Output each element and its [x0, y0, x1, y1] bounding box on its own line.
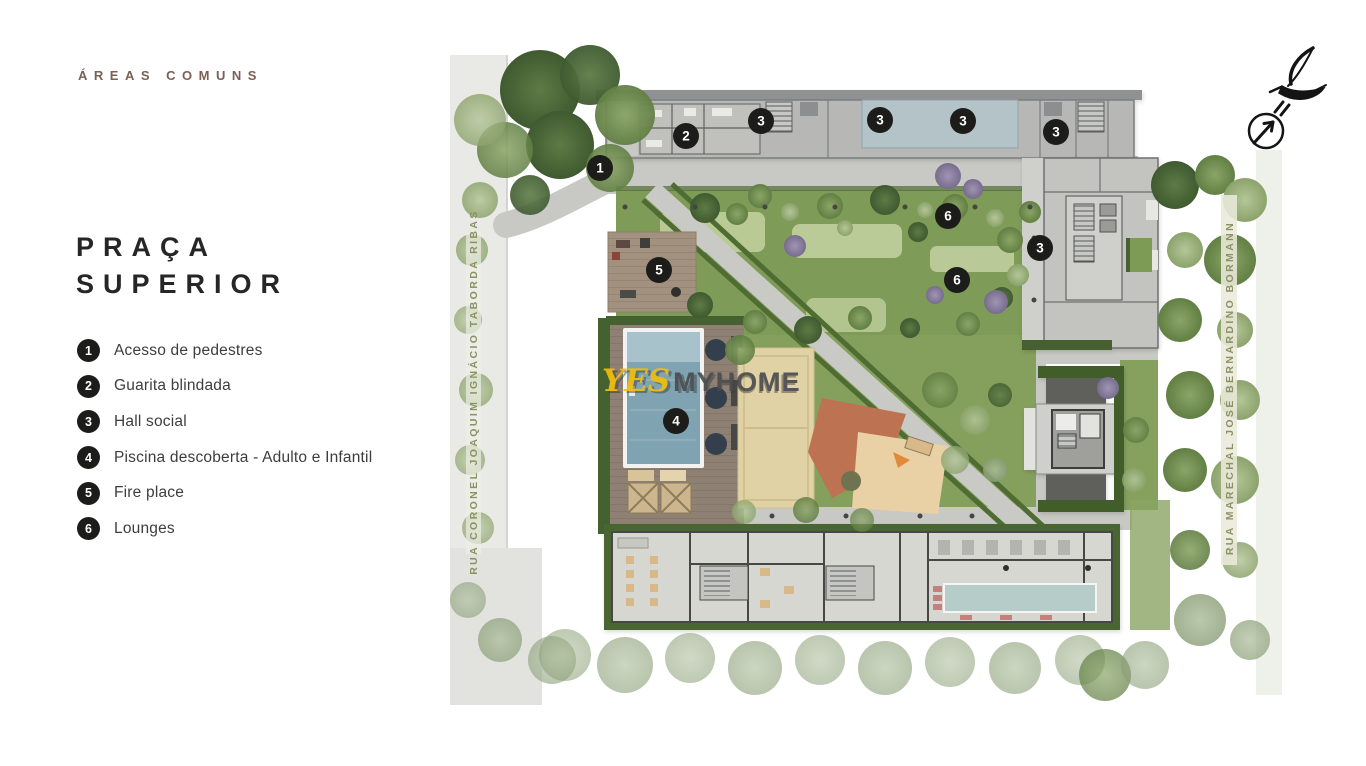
- plan-marker-6a: 6: [935, 203, 961, 229]
- plan-marker-3d: 3: [1043, 119, 1069, 145]
- legend-list: 1 Acesso de pedestres 2 Guarita blindada…: [77, 333, 372, 547]
- legend-item-6: 6 Lounges: [77, 511, 372, 547]
- section-eyebrow: ÁREAS COMUNS: [78, 68, 263, 83]
- svg-text:1: 1: [596, 161, 604, 176]
- svg-text:3: 3: [876, 113, 884, 128]
- legend-number-badge: 5: [77, 482, 100, 505]
- legend-number-badge: 4: [77, 446, 100, 469]
- legend-number-badge: 6: [77, 517, 100, 540]
- plan-marker-1: 1: [587, 155, 613, 181]
- fire-pit: [671, 287, 681, 297]
- plan-marker-3e: 3: [1027, 235, 1053, 261]
- parasol: [628, 483, 658, 513]
- plan-marker-5: 5: [646, 257, 672, 283]
- svg-text:YESMYHOME: YESMYHOME: [602, 363, 801, 399]
- plan-marker-3a: 3: [748, 108, 774, 134]
- legend-label: Fire place: [114, 484, 184, 502]
- plan-marker-6b: 6: [944, 267, 970, 293]
- svg-text:6: 6: [944, 209, 952, 224]
- parasol: [661, 483, 691, 513]
- legend-number-badge: 3: [77, 410, 100, 433]
- street-right: [1256, 150, 1282, 695]
- svg-text:RUA MARECHAL JOSÉ BERNARDINO B: RUA MARECHAL JOSÉ BERNARDINO BORMANN: [1223, 221, 1236, 555]
- stair-core: [1074, 236, 1094, 262]
- legend-label: Hall social: [114, 413, 187, 431]
- legend-item-1: 1 Acesso de pedestres: [77, 333, 372, 369]
- svg-text:2: 2: [682, 129, 690, 144]
- legend-number-badge: 1: [77, 339, 100, 362]
- street-label-right: RUA MARECHAL JOSÉ BERNARDINO BORMANN: [1221, 195, 1237, 565]
- legend-item-4: 4 Piscina descoberta - Adulto e Infantil: [77, 440, 372, 476]
- legend-number-badge: 2: [77, 375, 100, 398]
- page-title-line2: SUPERIOR: [76, 266, 289, 303]
- page-title: PRAÇA SUPERIOR: [76, 229, 289, 303]
- tree-row-bottom: [539, 629, 1169, 701]
- bottom-amenities-building: [604, 524, 1120, 630]
- page-title-line1: PRAÇA: [76, 229, 289, 266]
- guarita-rooms: [640, 104, 760, 154]
- plan-marker-4: 4: [663, 408, 689, 434]
- svg-text:3: 3: [757, 114, 765, 129]
- svg-text:4: 4: [672, 414, 680, 429]
- svg-text:3: 3: [1052, 125, 1060, 140]
- svg-text:3: 3: [1036, 241, 1044, 256]
- svg-text:3: 3: [959, 114, 967, 129]
- plan-marker-3b: 3: [867, 107, 893, 133]
- svg-text:RUA CORONEL JOAQUIM IGNÁCIO TA: RUA CORONEL JOAQUIM IGNÁCIO TABORDA RIBA…: [467, 209, 480, 575]
- watermark: YESMYHOME YESMYHOME: [602, 363, 801, 401]
- legend-label: Lounges: [114, 520, 175, 538]
- svg-text:6: 6: [953, 273, 961, 288]
- legend-label: Piscina descoberta - Adulto e Infantil: [114, 449, 372, 467]
- slide: RUA CORONEL JOAQUIM IGNÁCIO TABORDA RIBA…: [0, 0, 1366, 766]
- north-compass-icon: [1249, 102, 1289, 148]
- legend-item-3: 3 Hall social: [77, 404, 372, 440]
- stair-core: [1074, 204, 1094, 230]
- legend-item-5: 5 Fire place: [77, 475, 372, 511]
- legend-item-2: 2 Guarita blindada: [77, 369, 372, 405]
- bird-sketch-logo: [1270, 48, 1326, 99]
- plan-marker-2: 2: [673, 123, 699, 149]
- legend-label: Guarita blindada: [114, 377, 231, 395]
- legend-label: Acesso de pedestres: [114, 342, 263, 360]
- stair-core: [1078, 102, 1104, 132]
- street-label-left: RUA CORONEL JOAQUIM IGNÁCIO TABORDA RIBA…: [466, 209, 481, 575]
- plan-marker-3c: 3: [950, 108, 976, 134]
- svg-text:5: 5: [655, 263, 663, 278]
